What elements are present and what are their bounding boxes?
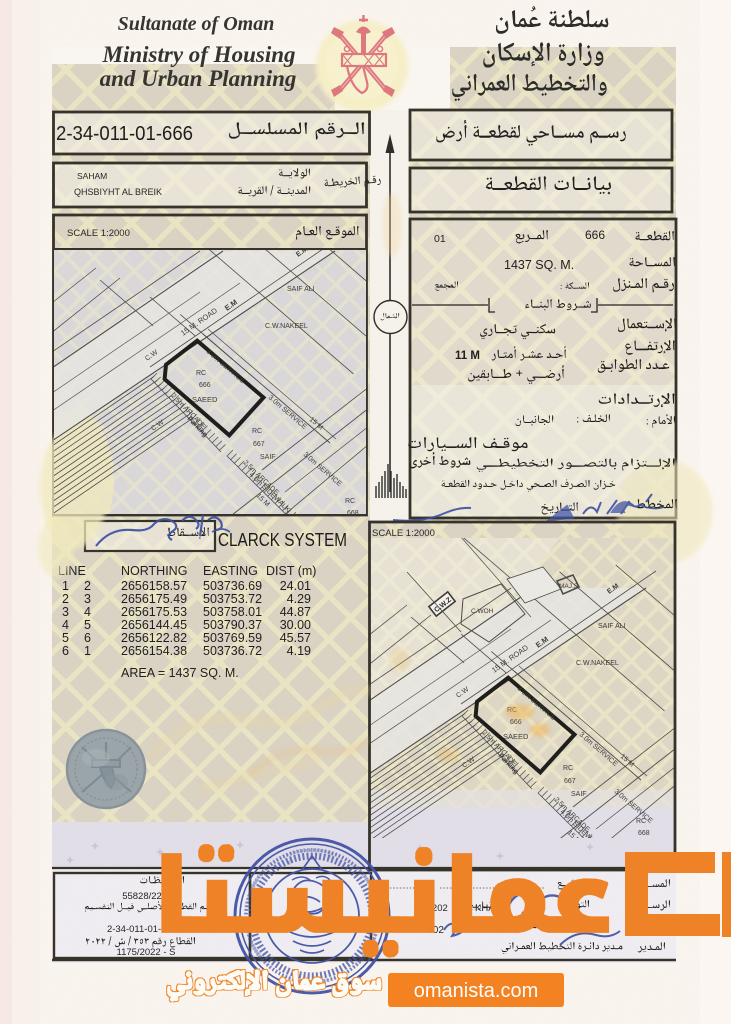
svg-text:Sultanate of Oman: Sultanate of Oman [118, 13, 275, 35]
svg-text:omanista.com: omanista.com [414, 980, 539, 1002]
